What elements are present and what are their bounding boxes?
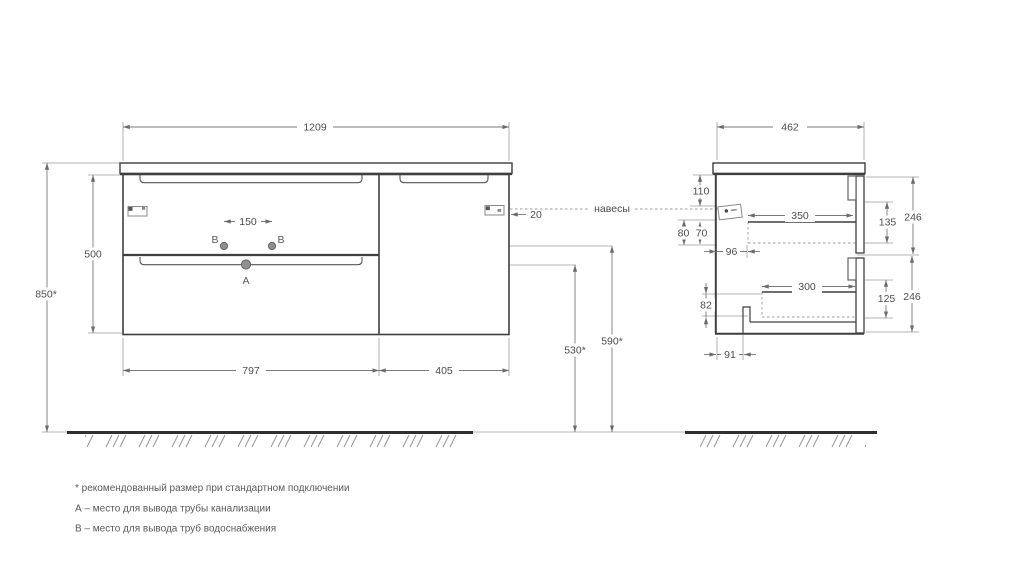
point-a-label: А [242,275,249,287]
bracket-screw [498,209,502,212]
point-b-right-dot [268,242,275,249]
dim-label-70: 70 [696,228,708,240]
footnotes: * рекомендованный размер при стандартном… [75,483,350,535]
dim-label-front-height: 500 [84,249,102,261]
dim-label-wall-height: 850* [35,289,57,301]
dim-label-depth: 462 [781,122,799,134]
dim-label-front-width: 1209 [303,122,327,134]
dim-label-110: 110 [693,186,710,198]
footnote-recommended-size: * рекомендованный размер при стандартном… [75,483,350,494]
front-view [120,163,512,335]
floor-hatching-front [85,435,457,448]
dim-label-246-top: 246 [904,212,922,224]
dotted-lines [505,209,855,317]
point-a-dot [241,260,250,269]
dim-label-bracket-gap: 20 [530,209,542,221]
dim-label-82: 82 [700,300,712,312]
front-countertop [120,163,512,174]
dim-label-supply-height: 590* [601,336,623,348]
dim-label-246-bottom: 246 [903,291,921,303]
dim-label-91: 91 [724,349,736,361]
hangers-label: навесы [594,203,630,215]
dim-label-125: 125 [878,293,896,305]
bracket-pin [129,207,133,211]
dim-label-350: 350 [791,210,809,222]
dim-label-b-spacing: 150 [239,216,257,228]
footnote-point-a: А – место для вывода трубы канализации [75,503,271,515]
dim-label-300: 300 [798,281,816,293]
drawer1-hidden-edges [748,222,855,243]
dim-label-right-width: 405 [435,365,453,377]
side-drawer1-front [856,176,864,253]
side-drawer1-handle-recess [848,176,856,200]
dim-label-left-width: 797 [242,365,260,377]
front-right-bracket-icon [485,206,504,216]
side-drawer2-handle-recess [848,258,856,280]
dim-label-96: 96 [726,246,738,258]
dim-label-135: 135 [879,217,897,229]
bracket-outline [718,204,742,220]
footnote-point-b: В – место для вывода труб водоснабжения [75,523,276,535]
front-left-bracket-icon [128,207,147,217]
side-bracket-icon [718,204,742,220]
floor-hatching-side [700,435,866,448]
side-countertop [713,163,865,174]
drawing-canvas: 1209 500 850* 150 797 405 530* 590* 20 н… [0,0,1024,576]
vanity-technical-drawing: 1209 500 850* 150 797 405 530* 590* 20 н… [0,0,1024,576]
point-b-left-dot [220,242,227,249]
dim-label-80: 80 [678,228,690,240]
dim-label-drain-height: 530* [564,345,586,357]
side-drawer2-front [856,258,864,333]
point-b-left-label: В [211,234,218,246]
drawer2-hidden-edges [762,292,855,317]
side-extension-lines [678,122,919,360]
point-b-right-label: В [277,234,284,246]
drain-pipe-channel [743,307,750,333]
bracket-screw [142,207,145,210]
floor [67,433,877,448]
bracket-pin [486,206,490,210]
